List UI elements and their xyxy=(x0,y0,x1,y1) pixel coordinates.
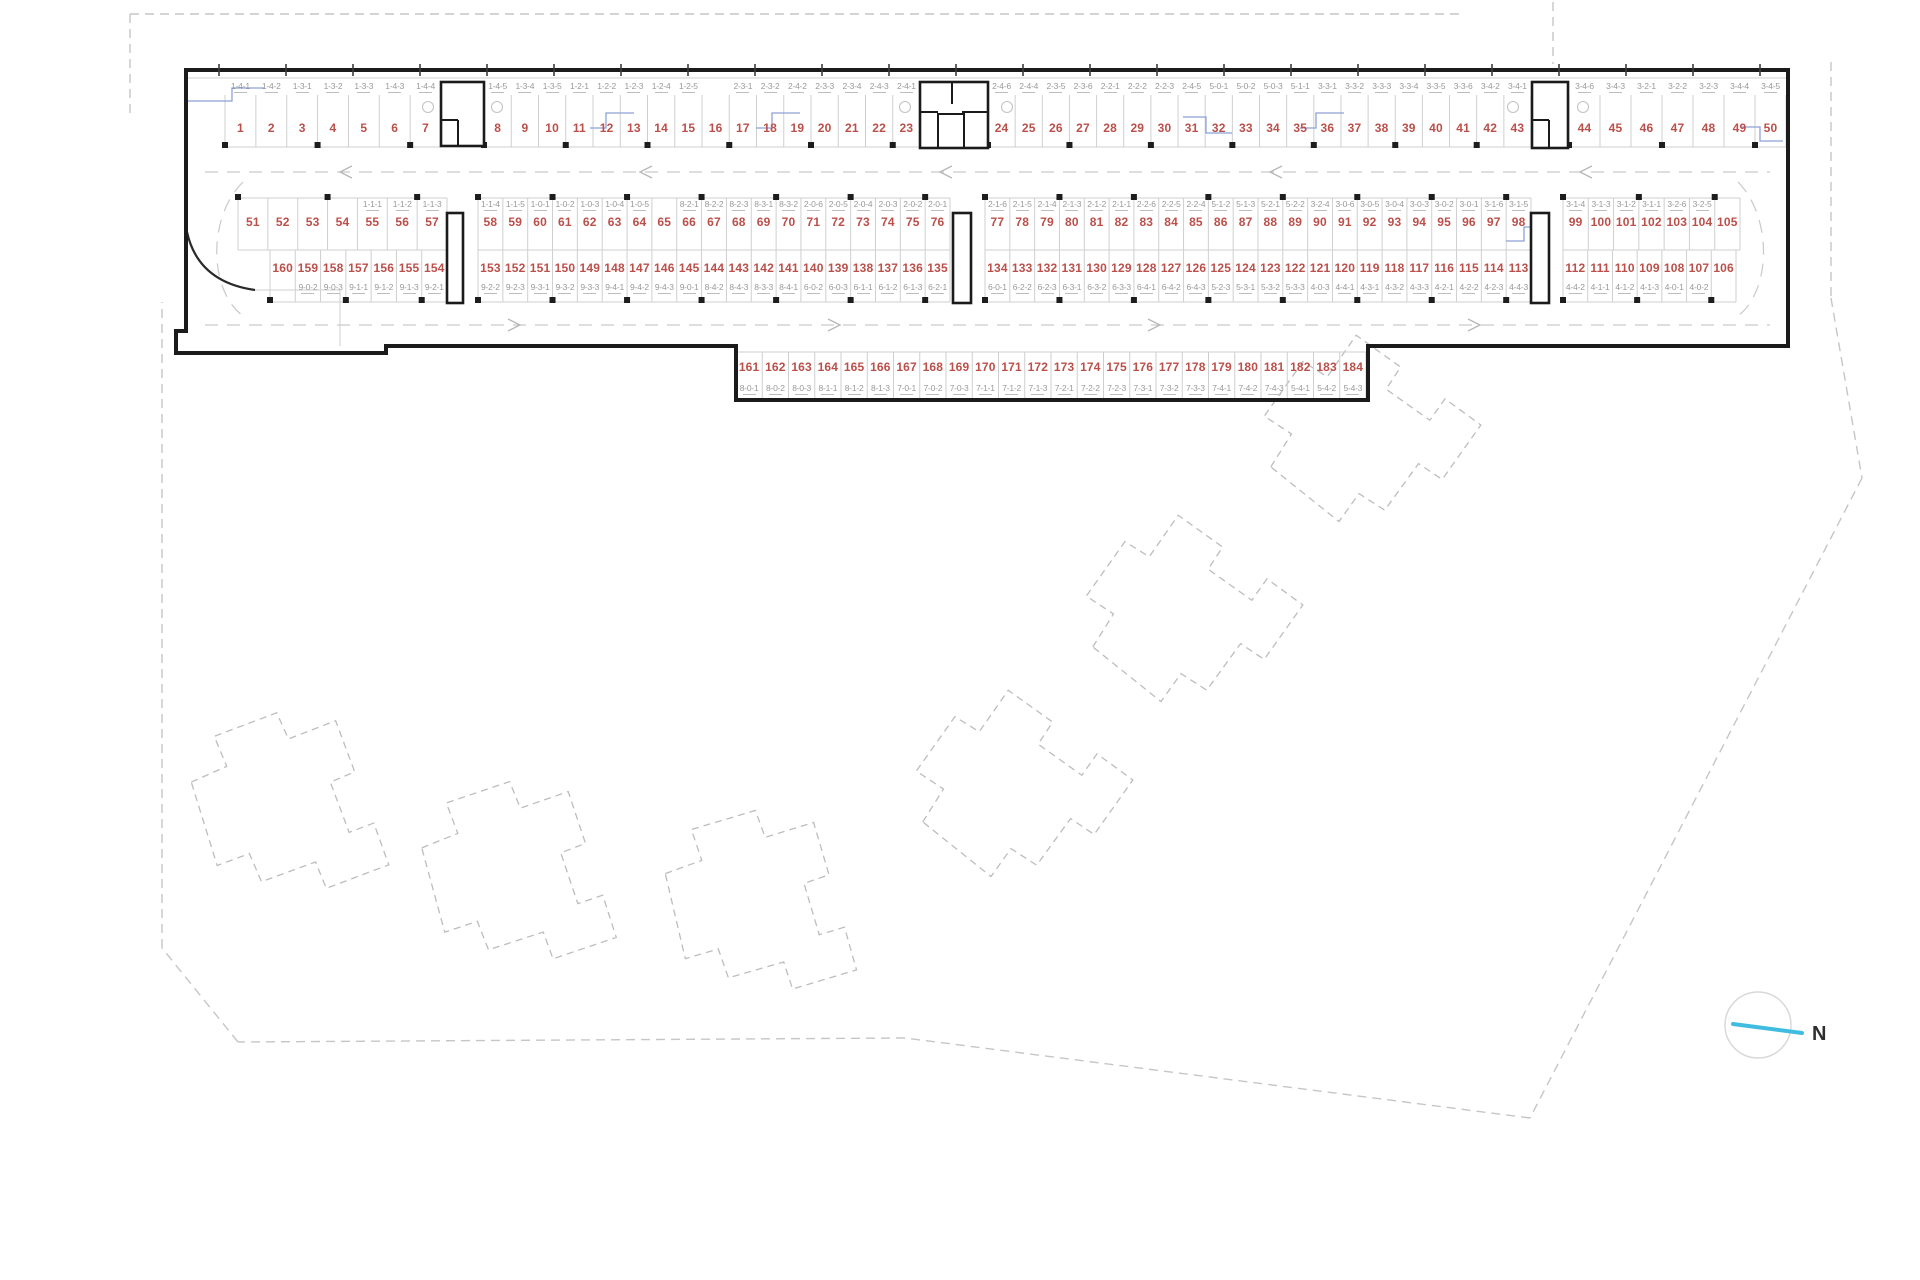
parking-space-111: 111 xyxy=(1588,261,1613,275)
parking-space-46: 46 xyxy=(1631,121,1662,135)
parking-space-137: 137 xyxy=(875,261,900,275)
parking-space-45: 45 xyxy=(1600,121,1631,135)
parking-space-108: 108 xyxy=(1662,261,1687,275)
parking-space-69: 69 xyxy=(751,215,776,229)
parking-space-124: 124 xyxy=(1233,261,1258,275)
parking-space-81: 81 xyxy=(1084,215,1109,229)
parking-space-70: 70 xyxy=(776,215,801,229)
parking-space-114: 114 xyxy=(1481,261,1506,275)
parking-space-10: 10 xyxy=(539,121,566,135)
parking-space-151: 151 xyxy=(528,261,553,275)
parking-space-176: 176 xyxy=(1130,360,1156,374)
parking-space-95: 95 xyxy=(1432,215,1457,229)
parking-space-63: 63 xyxy=(602,215,627,229)
parking-space-72: 72 xyxy=(826,215,851,229)
parking-space-171: 171 xyxy=(999,360,1025,374)
parking-space-87: 87 xyxy=(1233,215,1258,229)
parking-space-2: 2 xyxy=(256,121,287,135)
unit-code-98: 3-1-5 xyxy=(1500,199,1537,211)
parking-space-133: 133 xyxy=(1010,261,1035,275)
unit-code-50: 3-4-5 xyxy=(1749,81,1792,93)
parking-space-86: 86 xyxy=(1208,215,1233,229)
parking-space-20: 20 xyxy=(811,121,838,135)
parking-space-labels: 11-4-121-4-231-3-141-3-251-3-361-4-371-4… xyxy=(0,0,1920,1280)
parking-space-122: 122 xyxy=(1283,261,1308,275)
parking-space-154: 154 xyxy=(422,261,447,275)
parking-space-22: 22 xyxy=(866,121,893,135)
parking-space-44: 44 xyxy=(1569,121,1600,135)
parking-space-97: 97 xyxy=(1481,215,1506,229)
parking-space-103: 103 xyxy=(1664,215,1689,229)
parking-space-161: 161 xyxy=(736,360,762,374)
unit-code-107: 4-0-2 xyxy=(1681,282,1718,294)
parking-space-5: 5 xyxy=(348,121,379,135)
parking-space-58: 58 xyxy=(478,215,503,229)
unit-code-104: 3-2-5 xyxy=(1683,199,1720,211)
parking-space-53: 53 xyxy=(298,215,328,229)
parking-space-106: 106 xyxy=(1711,261,1736,275)
parking-space-155: 155 xyxy=(396,261,421,275)
parking-space-143: 143 xyxy=(726,261,751,275)
parking-space-184: 184 xyxy=(1340,360,1366,374)
unit-code-184: 5-4-3 xyxy=(1334,383,1372,395)
parking-space-90: 90 xyxy=(1308,215,1333,229)
parking-space-102: 102 xyxy=(1639,215,1664,229)
parking-space-121: 121 xyxy=(1308,261,1333,275)
parking-space-148: 148 xyxy=(602,261,627,275)
parking-space-93: 93 xyxy=(1382,215,1407,229)
parking-space-145: 145 xyxy=(677,261,702,275)
parking-space-50: 50 xyxy=(1755,121,1786,135)
parking-space-127: 127 xyxy=(1159,261,1184,275)
parking-space-172: 172 xyxy=(1025,360,1051,374)
parking-space-21: 21 xyxy=(838,121,865,135)
parking-space-29: 29 xyxy=(1124,121,1151,135)
parking-space-168: 168 xyxy=(920,360,946,374)
unit-code-57: 1-1-3 xyxy=(411,199,453,211)
parking-space-119: 119 xyxy=(1357,261,1382,275)
parking-space-118: 118 xyxy=(1382,261,1407,275)
parking-space-131: 131 xyxy=(1059,261,1084,275)
parking-space-170: 170 xyxy=(972,360,998,374)
parking-space-163: 163 xyxy=(789,360,815,374)
parking-space-177: 177 xyxy=(1156,360,1182,374)
parking-space-141: 141 xyxy=(776,261,801,275)
parking-space-160: 160 xyxy=(270,261,295,275)
parking-space-92: 92 xyxy=(1357,215,1382,229)
parking-space-144: 144 xyxy=(702,261,727,275)
parking-space-64: 64 xyxy=(627,215,652,229)
parking-space-96: 96 xyxy=(1457,215,1482,229)
parking-space-158: 158 xyxy=(321,261,346,275)
parking-space-28: 28 xyxy=(1097,121,1124,135)
parking-space-68: 68 xyxy=(726,215,751,229)
parking-space-80: 80 xyxy=(1059,215,1084,229)
parking-space-74: 74 xyxy=(875,215,900,229)
parking-space-65: 65 xyxy=(652,215,677,229)
parking-space-34: 34 xyxy=(1260,121,1287,135)
parking-space-73: 73 xyxy=(851,215,876,229)
unit-code-7: 1-4-4 xyxy=(404,81,447,93)
parking-space-27: 27 xyxy=(1069,121,1096,135)
parking-space-140: 140 xyxy=(801,261,826,275)
parking-space-89: 89 xyxy=(1283,215,1308,229)
parking-space-16: 16 xyxy=(702,121,729,135)
parking-space-42: 42 xyxy=(1477,121,1504,135)
parking-space-19: 19 xyxy=(784,121,811,135)
parking-space-128: 128 xyxy=(1134,261,1159,275)
site-plan: N 11-4-121-4-231-3-141-3-251-3-361-4-371… xyxy=(0,0,1920,1280)
parking-space-181: 181 xyxy=(1261,360,1287,374)
parking-space-38: 38 xyxy=(1368,121,1395,135)
parking-space-85: 85 xyxy=(1184,215,1209,229)
parking-space-110: 110 xyxy=(1612,261,1637,275)
parking-space-23: 23 xyxy=(893,121,920,135)
parking-space-116: 116 xyxy=(1432,261,1457,275)
parking-space-35: 35 xyxy=(1287,121,1314,135)
parking-space-113: 113 xyxy=(1506,261,1531,275)
parking-space-101: 101 xyxy=(1614,215,1639,229)
parking-space-123: 123 xyxy=(1258,261,1283,275)
parking-space-79: 79 xyxy=(1035,215,1060,229)
parking-space-117: 117 xyxy=(1407,261,1432,275)
parking-space-105: 105 xyxy=(1715,215,1740,229)
parking-space-91: 91 xyxy=(1332,215,1357,229)
parking-space-25: 25 xyxy=(1015,121,1042,135)
parking-space-32: 32 xyxy=(1205,121,1232,135)
parking-space-169: 169 xyxy=(946,360,972,374)
parking-space-135: 135 xyxy=(925,261,950,275)
parking-space-115: 115 xyxy=(1457,261,1482,275)
parking-space-12: 12 xyxy=(593,121,620,135)
parking-space-112: 112 xyxy=(1563,261,1588,275)
parking-space-57: 57 xyxy=(417,215,447,229)
parking-space-7: 7 xyxy=(410,121,441,135)
parking-space-109: 109 xyxy=(1637,261,1662,275)
parking-space-83: 83 xyxy=(1134,215,1159,229)
parking-space-165: 165 xyxy=(841,360,867,374)
parking-space-9: 9 xyxy=(511,121,538,135)
parking-space-6: 6 xyxy=(379,121,410,135)
parking-space-4: 4 xyxy=(318,121,349,135)
parking-space-182: 182 xyxy=(1287,360,1313,374)
parking-space-67: 67 xyxy=(702,215,727,229)
parking-space-78: 78 xyxy=(1010,215,1035,229)
parking-space-76: 76 xyxy=(925,215,950,229)
parking-space-60: 60 xyxy=(528,215,553,229)
parking-space-156: 156 xyxy=(371,261,396,275)
parking-space-129: 129 xyxy=(1109,261,1134,275)
parking-space-30: 30 xyxy=(1151,121,1178,135)
parking-space-75: 75 xyxy=(900,215,925,229)
parking-space-82: 82 xyxy=(1109,215,1134,229)
parking-space-39: 39 xyxy=(1395,121,1422,135)
parking-space-132: 132 xyxy=(1035,261,1060,275)
parking-space-179: 179 xyxy=(1209,360,1235,374)
parking-space-100: 100 xyxy=(1588,215,1613,229)
parking-space-178: 178 xyxy=(1182,360,1208,374)
parking-space-134: 134 xyxy=(985,261,1010,275)
parking-space-130: 130 xyxy=(1084,261,1109,275)
parking-space-153: 153 xyxy=(478,261,503,275)
parking-space-62: 62 xyxy=(577,215,602,229)
parking-space-41: 41 xyxy=(1450,121,1477,135)
parking-space-173: 173 xyxy=(1051,360,1077,374)
parking-space-37: 37 xyxy=(1341,121,1368,135)
parking-space-55: 55 xyxy=(357,215,387,229)
parking-space-40: 40 xyxy=(1422,121,1449,135)
unit-code-76: 2-0-1 xyxy=(919,199,956,211)
parking-space-147: 147 xyxy=(627,261,652,275)
parking-space-149: 149 xyxy=(577,261,602,275)
parking-space-52: 52 xyxy=(268,215,298,229)
parking-space-66: 66 xyxy=(677,215,702,229)
parking-space-13: 13 xyxy=(620,121,647,135)
parking-space-59: 59 xyxy=(503,215,528,229)
unit-code-113: 4-4-3 xyxy=(1500,282,1537,294)
parking-space-49: 49 xyxy=(1724,121,1755,135)
parking-space-31: 31 xyxy=(1178,121,1205,135)
parking-space-84: 84 xyxy=(1159,215,1184,229)
parking-space-94: 94 xyxy=(1407,215,1432,229)
parking-space-159: 159 xyxy=(295,261,320,275)
unit-code-23: 2-4-1 xyxy=(887,81,926,93)
parking-space-125: 125 xyxy=(1208,261,1233,275)
parking-space-51: 51 xyxy=(238,215,268,229)
parking-space-33: 33 xyxy=(1232,121,1259,135)
parking-space-18: 18 xyxy=(757,121,784,135)
parking-space-15: 15 xyxy=(675,121,702,135)
parking-space-99: 99 xyxy=(1563,215,1588,229)
unit-code-43: 3-4-1 xyxy=(1498,81,1537,93)
parking-space-175: 175 xyxy=(1104,360,1130,374)
parking-space-17: 17 xyxy=(729,121,756,135)
parking-space-138: 138 xyxy=(851,261,876,275)
unit-code-15: 1-2-5 xyxy=(669,81,708,93)
parking-space-146: 146 xyxy=(652,261,677,275)
parking-space-11: 11 xyxy=(566,121,593,135)
parking-space-162: 162 xyxy=(762,360,788,374)
parking-space-26: 26 xyxy=(1042,121,1069,135)
parking-space-139: 139 xyxy=(826,261,851,275)
parking-space-1: 1 xyxy=(225,121,256,135)
unit-code-154: 9-2-1 xyxy=(416,282,453,294)
parking-space-3: 3 xyxy=(287,121,318,135)
parking-space-48: 48 xyxy=(1693,121,1724,135)
parking-space-98: 98 xyxy=(1506,215,1531,229)
parking-space-180: 180 xyxy=(1235,360,1261,374)
parking-space-150: 150 xyxy=(553,261,578,275)
parking-space-166: 166 xyxy=(867,360,893,374)
parking-space-14: 14 xyxy=(648,121,675,135)
parking-space-157: 157 xyxy=(346,261,371,275)
parking-space-104: 104 xyxy=(1689,215,1714,229)
parking-space-24: 24 xyxy=(988,121,1015,135)
parking-space-183: 183 xyxy=(1314,360,1340,374)
parking-space-164: 164 xyxy=(815,360,841,374)
unit-code-64: 1-0-5 xyxy=(621,199,658,211)
parking-space-126: 126 xyxy=(1184,261,1209,275)
unit-code-135: 6-2-1 xyxy=(919,282,956,294)
parking-space-120: 120 xyxy=(1332,261,1357,275)
parking-space-71: 71 xyxy=(801,215,826,229)
parking-space-167: 167 xyxy=(894,360,920,374)
parking-space-43: 43 xyxy=(1504,121,1531,135)
parking-space-152: 152 xyxy=(503,261,528,275)
parking-space-54: 54 xyxy=(328,215,358,229)
parking-space-8: 8 xyxy=(484,121,511,135)
parking-space-142: 142 xyxy=(751,261,776,275)
parking-space-36: 36 xyxy=(1314,121,1341,135)
parking-space-136: 136 xyxy=(900,261,925,275)
parking-space-88: 88 xyxy=(1258,215,1283,229)
parking-space-56: 56 xyxy=(387,215,417,229)
parking-space-47: 47 xyxy=(1662,121,1693,135)
parking-space-77: 77 xyxy=(985,215,1010,229)
parking-space-174: 174 xyxy=(1077,360,1103,374)
parking-space-107: 107 xyxy=(1687,261,1712,275)
parking-space-61: 61 xyxy=(553,215,578,229)
